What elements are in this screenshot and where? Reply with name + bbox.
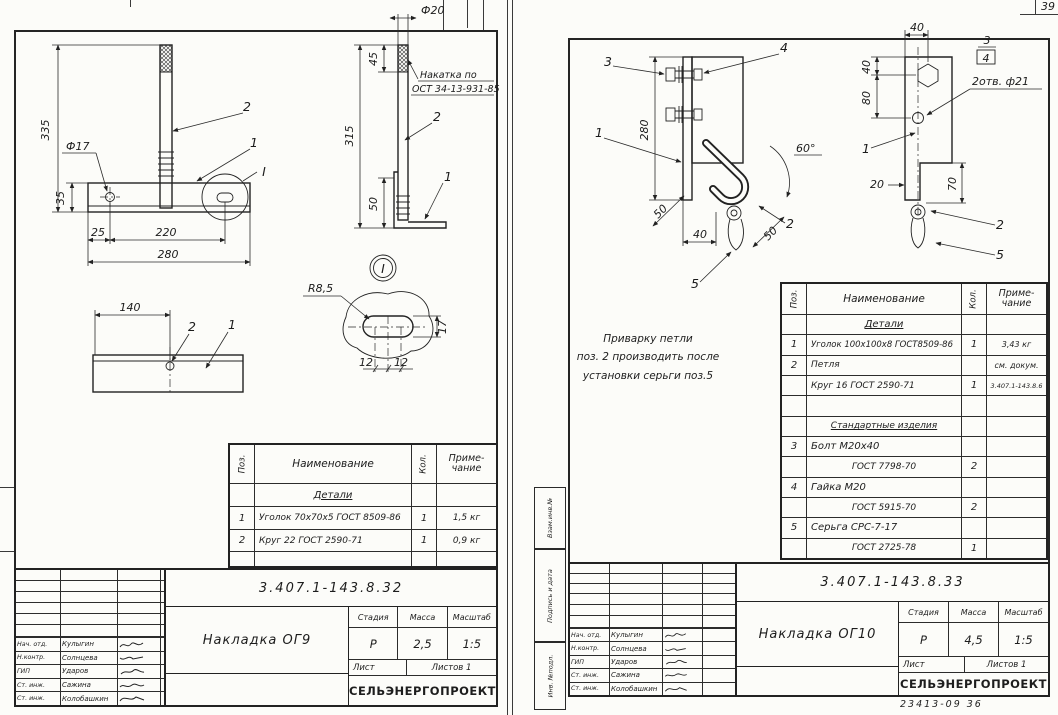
svg-text:12: 12 [359, 356, 373, 369]
svg-text:280: 280 [638, 120, 651, 141]
svg-text:80: 80 [860, 91, 873, 105]
svg-text:3: 3 [984, 34, 991, 47]
svg-text:Накатка по: Накатка по [420, 70, 477, 81]
table-row: ГОСТ 5915-70 2 [782, 497, 1046, 517]
approval-row: Ст. инж. Колобашкин [570, 682, 735, 695]
svg-text:2: 2 [188, 319, 196, 334]
svg-text:5: 5 [691, 276, 699, 291]
margin-label: Подпись и дата [546, 569, 554, 623]
name-header: Наименование [254, 445, 411, 483]
table-row: 2 Петля см. докум. [782, 355, 1046, 375]
part-title: Накладка ОГ10 [737, 602, 898, 667]
svg-text:60°: 60° [796, 142, 816, 155]
table-row: 1 Уголок 70х70х5 ГОСТ 8509-86 1 1,5 кг [230, 506, 496, 529]
sheets-label: Листов 1 [406, 660, 496, 675]
signature [117, 638, 160, 651]
svg-text:40: 40 [910, 21, 924, 34]
table-row: ГОСТ 7798-70 2 [782, 456, 1046, 476]
svg-text:4: 4 [780, 40, 788, 55]
left-parts-table: Поз. Наименование Кол. Приме- чание Дета… [228, 443, 498, 568]
signature [117, 652, 160, 665]
margin-box: Взам.инв.№ [534, 487, 566, 549]
pos-header: Поз. [237, 455, 247, 474]
svg-text:40: 40 [860, 60, 873, 74]
svg-text:50: 50 [761, 224, 780, 243]
svg-text:R8,5: R8,5 [308, 282, 333, 295]
approval-row: ГИП Ударов [16, 664, 164, 678]
scale-label: Масштаб [998, 602, 1048, 622]
sheet-label: Лист [899, 657, 964, 672]
svg-text:70: 70 [946, 177, 959, 191]
right-front-view: 3 4 1 2 5 280 50 40 50 60° [595, 40, 822, 291]
svg-text:2: 2 [996, 217, 1004, 232]
organization-name: СЕЛЬЭНЕРГОПРОЕКТ [899, 673, 1048, 695]
qty-header: Кол. [969, 289, 979, 308]
left-plan-view: 140 2 1 [93, 301, 243, 392]
mass-value: 4,5 [948, 623, 998, 656]
svg-text:2: 2 [433, 109, 441, 124]
section-label: Детали [254, 484, 411, 506]
section-label: Стандартные изделия [806, 417, 961, 436]
signature [662, 642, 702, 654]
svg-text:5: 5 [996, 247, 1004, 262]
left-front-view: 335 Ф17 35 25 220 280 2 1 I [39, 45, 266, 266]
svg-text:140: 140 [120, 301, 141, 314]
svg-text:1: 1 [228, 317, 236, 332]
scale-label: Масштаб [447, 607, 496, 627]
svg-text:220: 220 [156, 226, 177, 239]
svg-text:1: 1 [862, 141, 870, 156]
empty-row [230, 551, 496, 566]
svg-text:1: 1 [250, 135, 258, 150]
approval-column: Нач. отд. Кулыгин Н.контр. Солнцева ГИП … [16, 570, 164, 705]
signature [662, 683, 702, 695]
sheets-label: Листов 1 [964, 657, 1048, 672]
signature [117, 679, 160, 692]
svg-text:I: I [381, 261, 385, 276]
approval-row: Ст. инж. Колобашкин [16, 691, 164, 705]
stage-value: Р [899, 623, 948, 656]
svg-text:50: 50 [367, 197, 380, 211]
organization-name: СЕЛЬЭНЕРГОПРОЕКТ [349, 676, 496, 705]
right-title-block: Нач. отд. Кулыгин Н.контр. Солнцева ГИП … [568, 562, 1050, 697]
svg-text:ОСТ 34-13-931-85: ОСТ 34-13-931-85 [412, 84, 500, 95]
margin-box: Инв. №подл. [534, 642, 566, 710]
signature [117, 692, 160, 705]
note-header: Приме- чание [436, 445, 496, 483]
mass-value: 2,5 [397, 628, 446, 659]
section-row: Детали [230, 483, 496, 506]
stage-label: Стадия [349, 607, 397, 627]
table-header-row: Поз. Наименование Кол. Приме- чание [782, 284, 1046, 314]
approval-row: Ст. инж. Сажина [570, 668, 735, 681]
svg-text:4: 4 [983, 52, 990, 65]
mass-label: Масса [397, 607, 446, 627]
scale-value: 1:5 [998, 623, 1048, 656]
table-header-row: Поз. Наименование Кол. Приме- чание [230, 445, 496, 483]
part-title: Накладка ОГ9 [166, 607, 348, 674]
svg-text:1: 1 [595, 125, 603, 140]
signature [662, 656, 702, 668]
signature [662, 629, 702, 641]
margin-label: Взам.инв.№ [546, 498, 554, 538]
signature [117, 665, 160, 678]
svg-text:335: 335 [39, 120, 52, 141]
svg-text:40: 40 [693, 228, 707, 241]
margin-box: Подпись и дата [534, 549, 566, 642]
right-side-view: 40 40 80 20 70 2отв. ф21 3 4 1 2 5 [860, 21, 1042, 262]
table-row: 4 Гайка М20 [782, 477, 1046, 497]
sheet-label: Лист [349, 660, 406, 675]
left-detail-I: R8,5 17 12 12 [303, 282, 449, 374]
table-row: Круг 16 ГОСТ 2590-71 1 3.407.1-143.8.6 [782, 375, 1046, 395]
table-row: 5 Серьга СРС-7-17 [782, 517, 1046, 537]
approval-row: Нач. отд. Кулыгин [570, 629, 735, 641]
left-side-view: Ф20 45 315 50 Накатка по ОСТ 34-13-931-8… [343, 4, 500, 281]
svg-text:35: 35 [54, 191, 67, 205]
table-row: 1 Уголок 100х100х8 ГОСТ8509-86 1 3,43 кг [782, 334, 1046, 354]
svg-text:280: 280 [158, 248, 179, 261]
svg-text:I: I [262, 164, 266, 179]
mass-label: Масса [948, 602, 998, 622]
section-row: Детали [782, 314, 1046, 334]
archive-code: 23413-09 36 [900, 699, 983, 710]
svg-text:25: 25 [91, 226, 105, 239]
svg-text:2отв. ф21: 2отв. ф21 [972, 75, 1029, 88]
svg-text:3: 3 [604, 54, 612, 69]
svg-text:45: 45 [367, 52, 380, 66]
approval-row: Н.контр. Солнцева [16, 651, 164, 665]
name-header: Наименование [806, 284, 961, 314]
pos-header: Поз. [789, 290, 799, 309]
table-row: 3 Болт М20х40 [782, 436, 1046, 456]
svg-text:1: 1 [444, 169, 452, 184]
stage-value: Р [349, 628, 397, 659]
note-header: Приме- чание [986, 284, 1046, 314]
doc-number: 3.407.1-143.8.32 [166, 570, 496, 607]
right-parts-table: Поз. Наименование Кол. Приме- чание Дета… [780, 282, 1048, 560]
empty-row [782, 395, 1046, 415]
signature [662, 669, 702, 681]
approval-row: Нач. отд. Кулыгин [16, 638, 164, 651]
svg-text:17: 17 [436, 320, 449, 334]
approval-row: Н.контр. Солнцева [570, 641, 735, 654]
svg-text:315: 315 [343, 126, 356, 147]
svg-text:12: 12 [394, 356, 408, 369]
approval-row: Ст. инж. Сажина [16, 678, 164, 692]
qty-header: Кол. [419, 454, 429, 473]
doc-number: 3.407.1-143.8.33 [737, 564, 1048, 602]
table-row: 2 Круг 22 ГОСТ 2590-71 1 0,9 кг [230, 529, 496, 551]
svg-text:Ф17: Ф17 [66, 140, 89, 153]
stage-label: Стадия [899, 602, 948, 622]
svg-text:20: 20 [870, 178, 884, 191]
margin-label: Инв. №подл. [546, 655, 554, 698]
scanned-drawing-canvas: 39 .o{fill:none;stroke:#222;stroke-width… [0, 0, 1058, 715]
svg-text:2: 2 [243, 99, 251, 114]
svg-text:50: 50 [651, 202, 670, 221]
section-row: Стандартные изделия [782, 416, 1046, 436]
approval-row: ГИП Ударов [570, 655, 735, 668]
weld-note: Приварку петли поз. 2 производить после … [568, 330, 728, 385]
section-label: Детали [806, 315, 961, 334]
table-row: ГОСТ 2725-78 1 [782, 538, 1046, 558]
left-title-block: Нач. отд. Кулыгин Н.контр. Солнцева ГИП … [14, 568, 498, 707]
svg-text:Ф20: Ф20 [421, 4, 444, 17]
approval-column: Нач. отд. Кулыгин Н.контр. Солнцева ГИП … [570, 564, 735, 695]
svg-text:2: 2 [786, 216, 794, 231]
scale-value: 1:5 [447, 628, 496, 659]
